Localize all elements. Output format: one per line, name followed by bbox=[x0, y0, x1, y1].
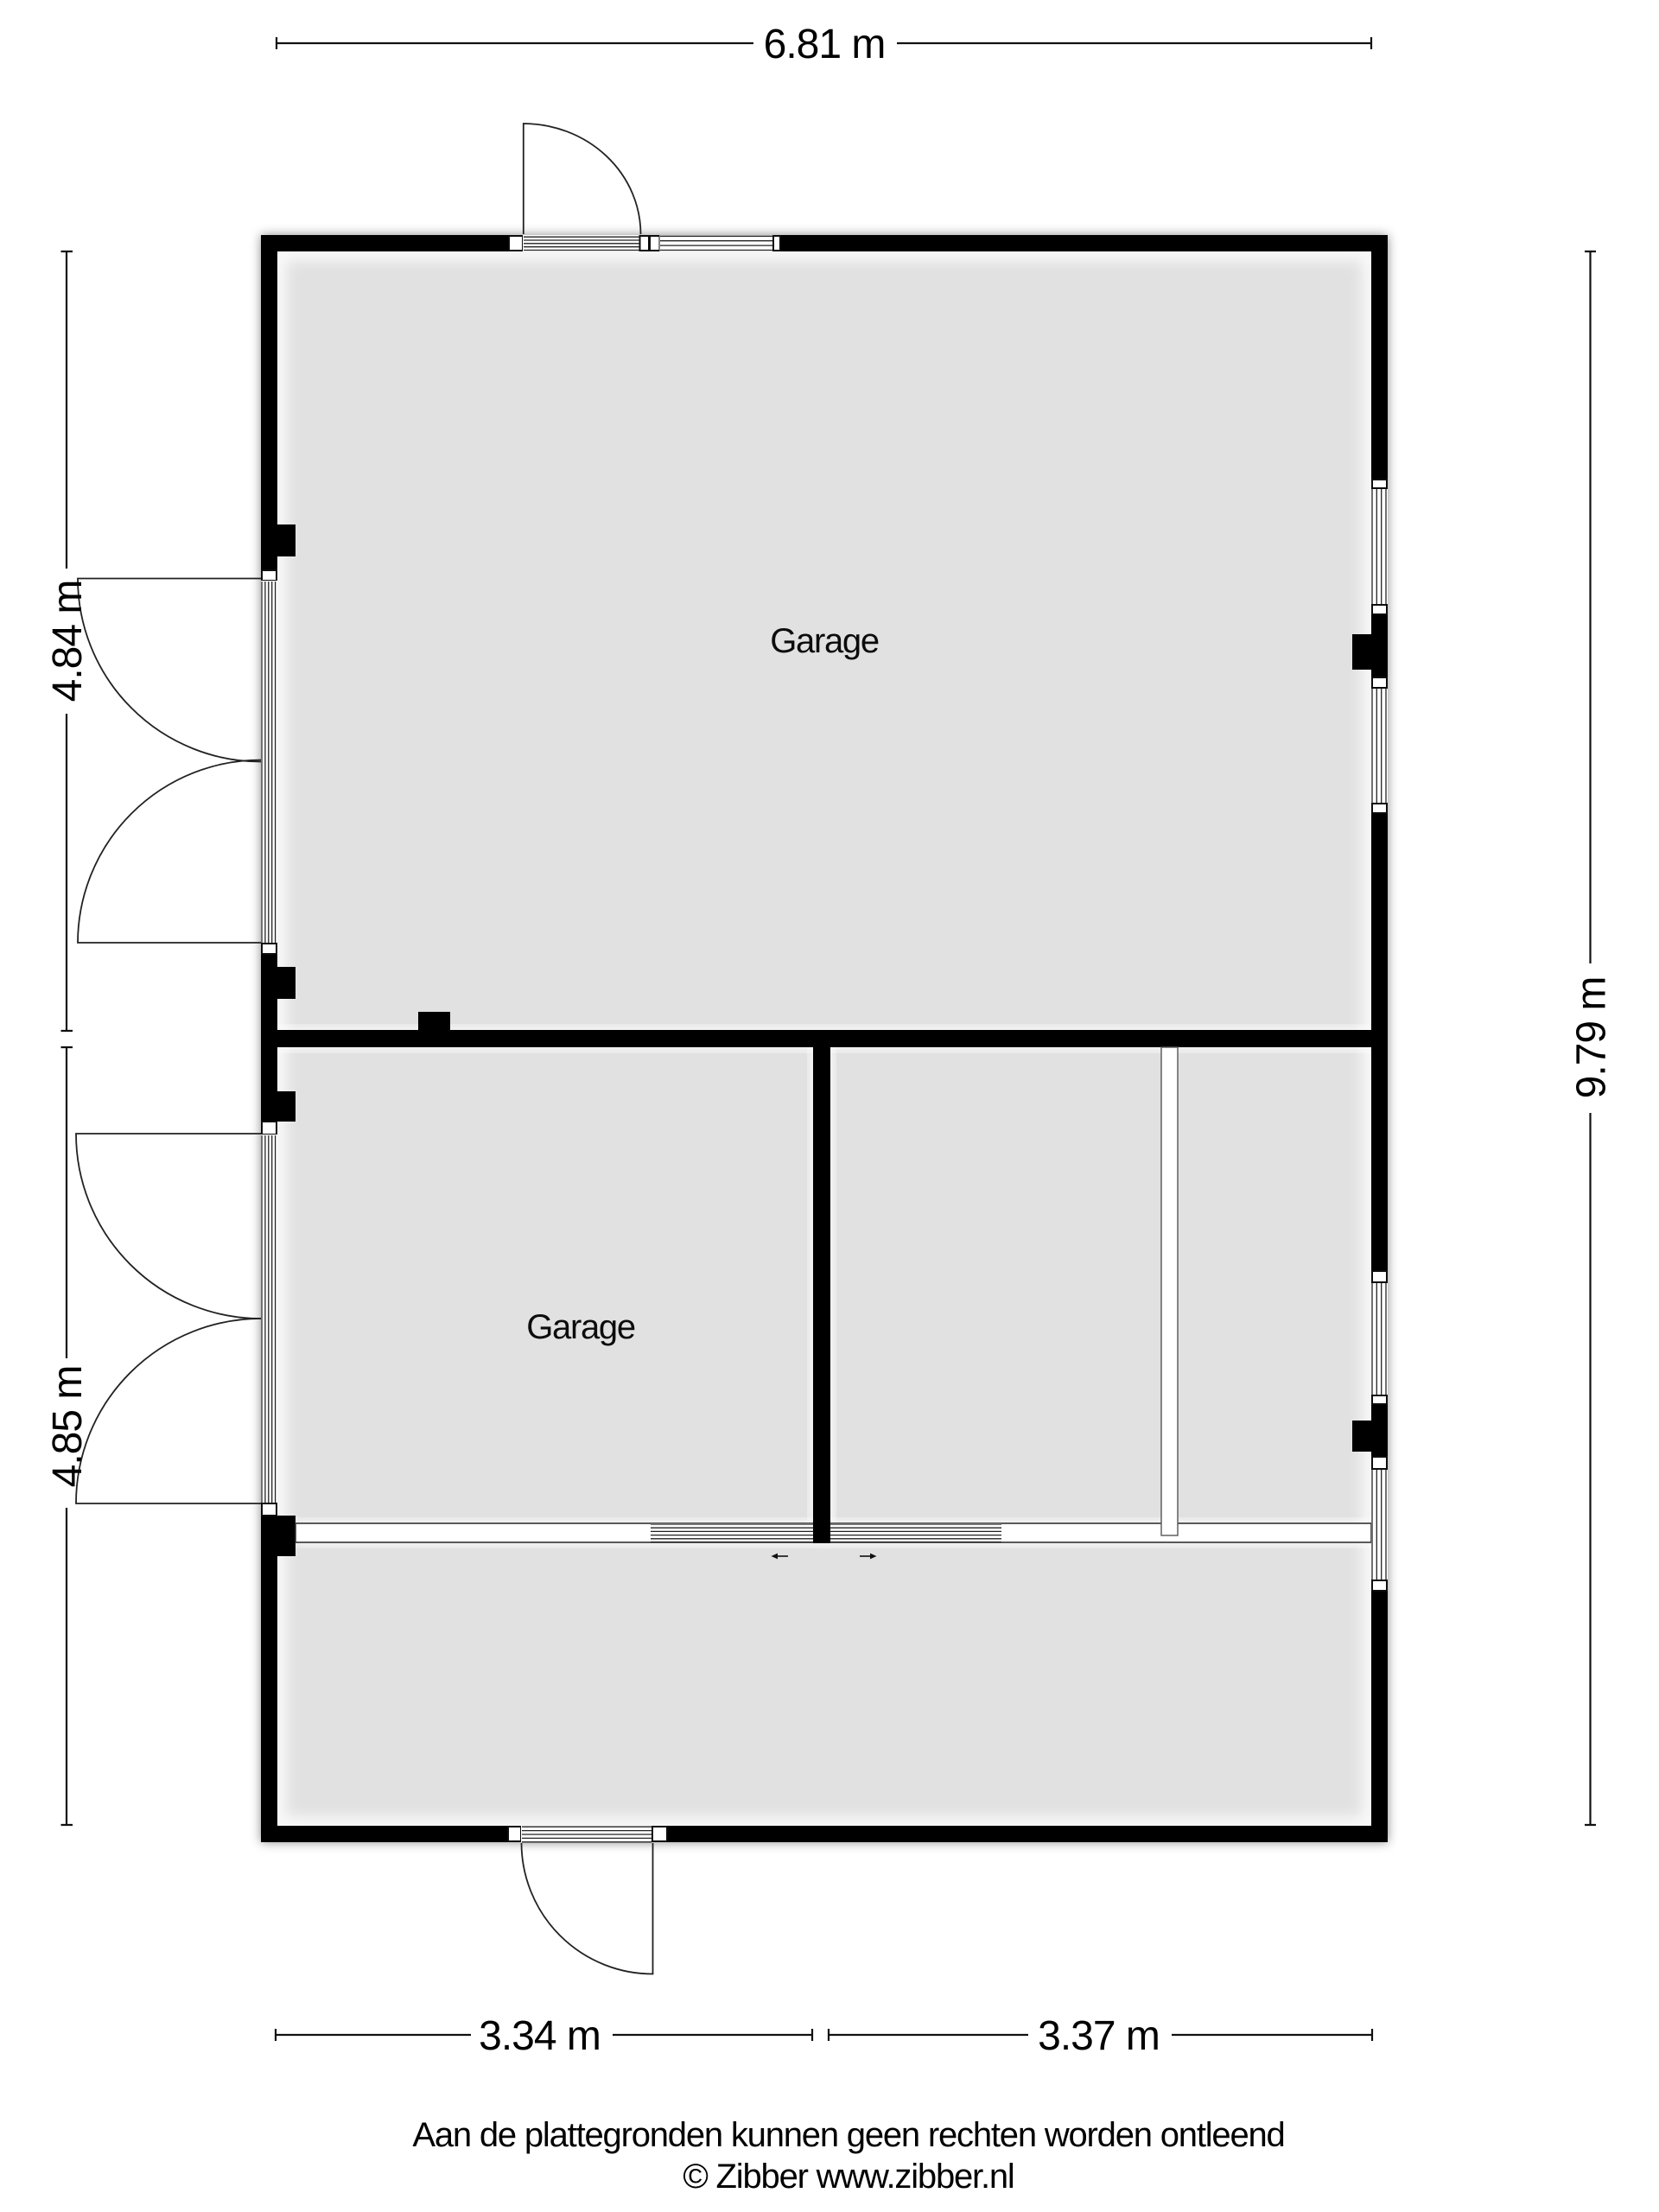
svg-text:6.81 m: 6.81 m bbox=[764, 22, 886, 67]
svg-text:4.84 m: 4.84 m bbox=[45, 581, 91, 702]
svg-text:Garage: Garage bbox=[770, 622, 879, 660]
svg-text:4.85 m: 4.85 m bbox=[45, 1366, 91, 1488]
svg-text:Aan de plattegronden kunnen ge: Aan de plattegronden kunnen geen rechten… bbox=[412, 2116, 1284, 2154]
svg-text:3.37 m: 3.37 m bbox=[1038, 2013, 1160, 2059]
svg-text:3.34 m: 3.34 m bbox=[479, 2013, 601, 2059]
svg-text:9.79 m: 9.79 m bbox=[1569, 977, 1615, 1099]
svg-text:Garage: Garage bbox=[526, 1308, 635, 1346]
svg-text:© Zibber www.zibber.nl: © Zibber www.zibber.nl bbox=[683, 2158, 1014, 2196]
